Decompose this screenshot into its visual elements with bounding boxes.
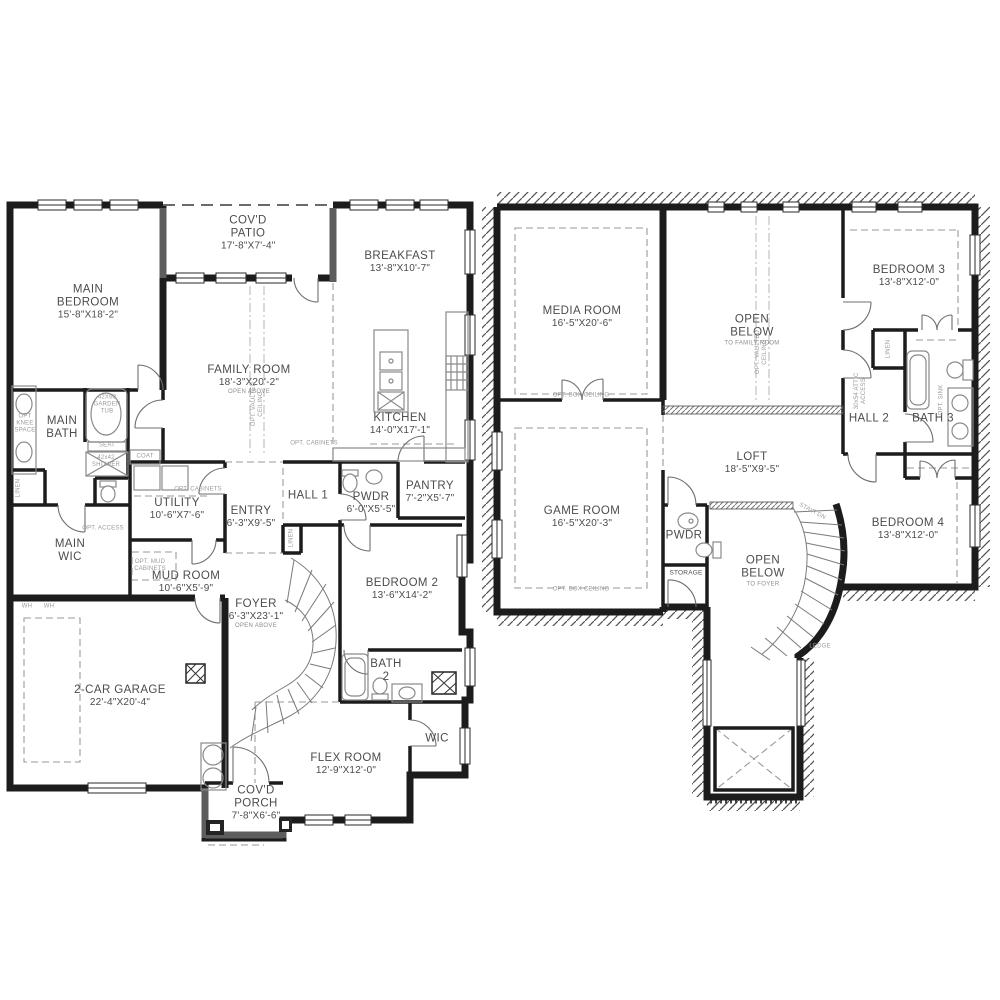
media-room-dimensions: 16'-5"X20'-6": [517, 318, 647, 329]
entry-label: ENTRY6'-3"X9'-5": [221, 505, 281, 529]
bath-2-label: BATH 2: [368, 658, 404, 684]
annotation-42x42-shower: 42x42 SHOWER: [90, 455, 122, 469]
utility-dimensions: 10'-6"X7'-6": [127, 510, 227, 521]
annotation-opt-box-ceiling: OPT. BOX CEILING: [536, 393, 626, 400]
annotation-30x54-attic-access: 30x54 ATTIC ACCESS: [854, 371, 868, 411]
annotation-ledge: LEDGE: [809, 644, 830, 651]
breakfast-label: BREAKFAST13'-8"X10'-7": [340, 250, 460, 274]
wic-label: WIC: [417, 733, 457, 746]
kitchen-label: KITCHEN14'-0"X17'-1": [345, 412, 455, 436]
bedroom-3-name: BEDROOM 3: [849, 264, 969, 277]
entry-name: ENTRY: [221, 505, 281, 518]
annotation-storage: STORAGE: [669, 569, 702, 576]
annotation-opt-sink: OPT. SINK: [939, 385, 946, 416]
garage-name: 2-CAR GARAGE: [45, 684, 195, 697]
annotation-opt-cabinets: OPT. CABINETS: [279, 441, 349, 448]
bedroom-2-label: BEDROOM 213'-6"X14'-2": [342, 577, 462, 601]
garage-label: 2-CAR GARAGE22'-4"X20'-4": [45, 684, 195, 708]
annotation-coat: COAT: [136, 454, 153, 461]
annotation-opt-vaulted-ceiling: OPT. VAULTED CEILING: [251, 372, 265, 436]
foyer-note: OPEN ABOVE: [211, 623, 301, 630]
open-below-family-name: OPEN BELOW: [722, 313, 782, 339]
bedroom-4-dimensions: 13'-8"X12'-0": [848, 530, 968, 541]
game-room-name: GAME ROOM: [517, 505, 647, 518]
main-bath-name: MAIN BATH: [41, 415, 83, 441]
annotation-opt-knee-space: OPT KNEE SPACE: [12, 414, 38, 435]
loft-dimensions: 18'-5"X9'-5": [702, 464, 802, 475]
main-wic-label: MAIN WIC: [49, 538, 91, 564]
mud-room-label: MUD ROOM10'-6"X5'-9": [131, 570, 241, 594]
covd-porch-name: COV'D PORCH: [228, 785, 284, 811]
pantry-label: PANTRY7'-2"X5'-7": [395, 480, 465, 504]
foyer-dimensions: 6'-3"X23'-1": [211, 611, 301, 622]
bedroom-4-name: BEDROOM 4: [848, 517, 968, 530]
annotation-opt-mud-cabinets: OPT. MUD CABINETS: [124, 559, 176, 573]
open-below-foyer-name: OPEN BELOW: [733, 554, 793, 580]
main-bedroom-name: MAIN BEDROOM: [49, 284, 127, 310]
utility-label: UTILITY10'-6"X7'-6": [127, 497, 227, 521]
hall-1-name: HALL 1: [278, 490, 338, 503]
annotation-stair-dn: STAIR DN: [798, 502, 827, 522]
game-room-label: GAME ROOM16'-5"X20'-3": [517, 505, 647, 529]
labels-layer: COV'D PATIO17'-8"X7'-4"BREAKFAST13'-8"X1…: [0, 0, 1000, 1000]
main-bath-label: MAIN BATH: [41, 415, 83, 441]
breakfast-dimensions: 13'-8"X10'-7": [340, 263, 460, 274]
main-bedroom-label: MAIN BEDROOM15'-8"X18'-2": [49, 284, 127, 321]
media-room-name: MEDIA ROOM: [517, 305, 647, 318]
bath-3-name: BATH 3: [903, 413, 963, 426]
covd-porch-label: COV'D PORCH7'-8"X6'-6": [228, 785, 284, 822]
annotation-opt-cabinets: OPT. CABINETS: [163, 487, 233, 494]
annotation-wh: WH: [44, 604, 54, 611]
open-below-family-note: TO FAMILY ROOM: [722, 340, 782, 347]
mud-room-dimensions: 10'-6"X5'-9": [131, 583, 241, 594]
pwdr-1-dimensions: 6'-0"X5'-5": [333, 504, 409, 515]
foyer-label: FOYER6'-3"X23'-1"OPEN ABOVE: [211, 598, 301, 630]
hall-2-name: HALL 2: [839, 413, 899, 426]
annotation-opt-access: OPT. ACCESS: [78, 526, 128, 533]
annotation-opt-vaulted-ceiling: OPT. VAULTED CEILING: [755, 320, 769, 384]
covd-porch-dimensions: 7'-8"X6'-6": [228, 810, 284, 821]
bedroom-3-dimensions: 13'-8"X12'-0": [849, 277, 969, 288]
media-room-label: MEDIA ROOM16'-5"X20'-6": [517, 305, 647, 329]
game-room-dimensions: 16'-5"X20'-3": [517, 518, 647, 529]
pantry-name: PANTRY: [395, 480, 465, 493]
main-bedroom-dimensions: 15'-8"X18'-2": [49, 309, 127, 320]
flex-room-label: FLEX ROOM12'-9"X12'-0": [286, 752, 406, 776]
garage-dimensions: 22'-4"X20'-4": [45, 697, 195, 708]
family-room-name: FAMILY ROOM: [184, 364, 314, 377]
hall-1-label: HALL 1: [278, 490, 338, 503]
bedroom-2-dimensions: 13'-6"X14'-2": [342, 590, 462, 601]
annotation-linen: LINEN: [289, 529, 296, 548]
bath-2-name: BATH 2: [368, 658, 404, 684]
bedroom-2-name: BEDROOM 2: [342, 577, 462, 590]
loft-label: LOFT18'-5"X9'-5": [702, 451, 802, 475]
breakfast-name: BREAKFAST: [340, 250, 460, 263]
bath-3-label: BATH 3: [903, 413, 963, 426]
covd-patio-label: COV'D PATIO17'-8"X7'-4": [221, 215, 275, 252]
loft-name: LOFT: [702, 451, 802, 464]
entry-dimensions: 6'-3"X9'-5": [221, 518, 281, 529]
foyer-name: FOYER: [211, 598, 301, 611]
pantry-dimensions: 7'-2"X5'-7": [395, 493, 465, 504]
open-below-family-label: OPEN BELOWTO FAMILY ROOM: [722, 313, 782, 346]
annotation-linen: LINEN: [16, 479, 23, 498]
covd-patio-name: COV'D PATIO: [221, 215, 275, 241]
wic-name: WIC: [417, 733, 457, 746]
hall-2-label: HALL 2: [839, 413, 899, 426]
utility-name: UTILITY: [127, 497, 227, 510]
bedroom-3-label: BEDROOM 313'-8"X12'-0": [849, 264, 969, 288]
open-below-foyer-note: TO FOYER: [733, 581, 793, 588]
flex-room-dimensions: 12'-9"X12'-0": [286, 765, 406, 776]
pwdr-2-name: PWDR: [659, 530, 709, 543]
annotation-wh: WH: [22, 604, 32, 611]
family-room-label: FAMILY ROOM18'-3"X20'-2"OPEN ABOVE: [184, 364, 314, 396]
kitchen-name: KITCHEN: [345, 412, 455, 425]
main-wic-name: MAIN WIC: [49, 538, 91, 564]
covd-patio-dimensions: 17'-8"X7'-4": [221, 240, 275, 251]
open-below-foyer-label: OPEN BELOWTO FOYER: [733, 554, 793, 587]
family-room-dimensions: 18'-3"X20'-2": [184, 377, 314, 388]
floor-plan-page: COV'D PATIO17'-8"X7'-4"BREAKFAST13'-8"X1…: [0, 0, 1000, 1000]
flex-room-name: FLEX ROOM: [286, 752, 406, 765]
annotation-seat: SEAT: [99, 443, 115, 450]
annotation-linen: LINEN: [886, 340, 893, 359]
bedroom-4-label: BEDROOM 413'-8"X12'-0": [848, 517, 968, 541]
annotation-42x60-garden-tub: 42X60 GARDEN TUB: [89, 395, 125, 416]
kitchen-dimensions: 14'-0"X17'-1": [345, 425, 455, 436]
pwdr-2-label: PWDR: [659, 530, 709, 543]
family-room-note: OPEN ABOVE: [184, 389, 314, 396]
annotation-opt-box-ceiling: OPT. BOX CEILING: [536, 587, 626, 594]
